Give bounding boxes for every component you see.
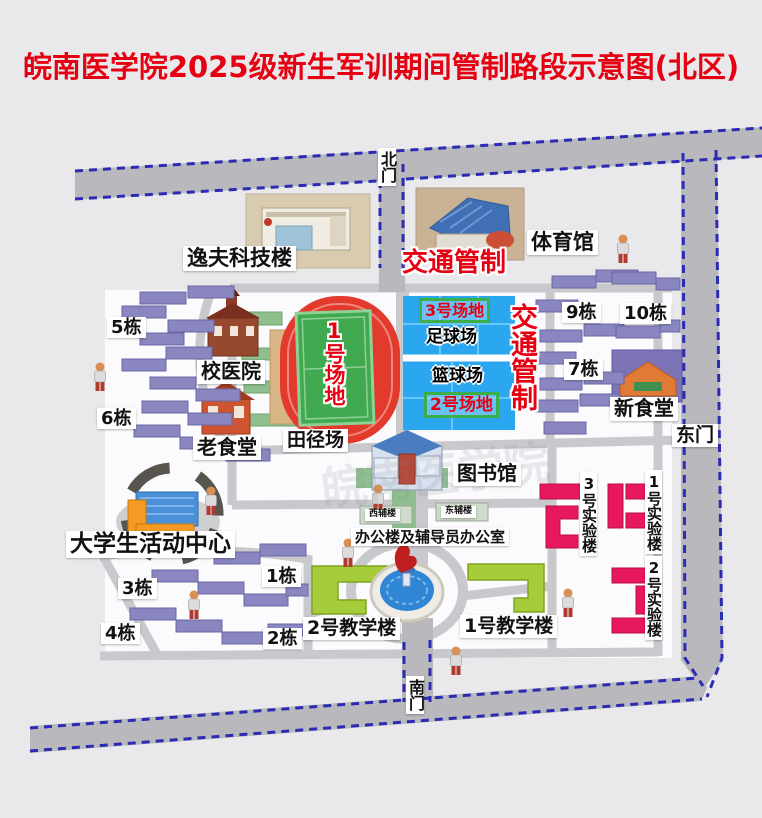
football-field-label: 足球场 xyxy=(422,327,481,347)
basketball-court-label: 篮球场 xyxy=(428,366,487,386)
lab3-label: 3号实验楼 xyxy=(580,472,597,556)
field3-label: 3号场地 xyxy=(419,298,490,323)
dorm3-label: 3栋 xyxy=(118,578,157,599)
lab2-label: 2号实验楼 xyxy=(645,556,662,640)
campus-map: 皖南医学院2025级新生军训期间管制路段示意图(北区) xyxy=(0,0,762,818)
teaching2-label: 2号教学楼 xyxy=(303,617,400,640)
south-gate-label: 南门 xyxy=(406,676,424,714)
dorm5-label: 5栋 xyxy=(107,317,146,338)
dorm10-label: 10栋 xyxy=(620,303,671,324)
traffic-control-side-label: 交通管制 xyxy=(507,300,536,414)
dorm9-label: 9栋 xyxy=(562,302,601,323)
track-field-label: 田径场 xyxy=(283,429,348,452)
library-label: 图书馆 xyxy=(453,462,521,486)
traffic-control-top-label: 交通管制 xyxy=(398,248,510,278)
old-canteen-label: 老食堂 xyxy=(193,436,261,460)
teaching1-label: 1号教学楼 xyxy=(460,615,557,638)
school-hospital-label: 校医院 xyxy=(197,360,265,384)
lab1-label: 1号实验楼 xyxy=(645,470,662,554)
field2-label: 2号场地 xyxy=(424,392,499,418)
gymnasium-label: 体育馆 xyxy=(527,230,598,255)
fountain xyxy=(371,563,443,621)
yifu-tech-label: 逸夫科技楼 xyxy=(183,246,296,271)
page-title: 皖南医学院2025级新生军训期间管制路段示意图(北区) xyxy=(0,44,762,86)
new-canteen-label: 新食堂 xyxy=(610,397,678,421)
east-annex-label: 东辅楼 xyxy=(441,506,476,518)
east-gate-label: 东门 xyxy=(672,424,718,447)
dorm1-label: 1栋 xyxy=(262,566,301,587)
dorm2-label: 2栋 xyxy=(263,628,302,649)
west-annex-label: 西辅楼 xyxy=(365,509,400,521)
dorm7-label: 7栋 xyxy=(564,359,603,380)
dorm6-label: 6栋 xyxy=(97,408,136,429)
north-gate-label: 北门 xyxy=(378,148,396,186)
office-building-label: 办公楼及辅导员办公室 xyxy=(351,528,509,546)
activity-center-label: 大学生活动中心 xyxy=(66,531,235,558)
dorm4-label: 4栋 xyxy=(101,623,140,644)
field1-label: 1号场地 xyxy=(322,316,345,409)
